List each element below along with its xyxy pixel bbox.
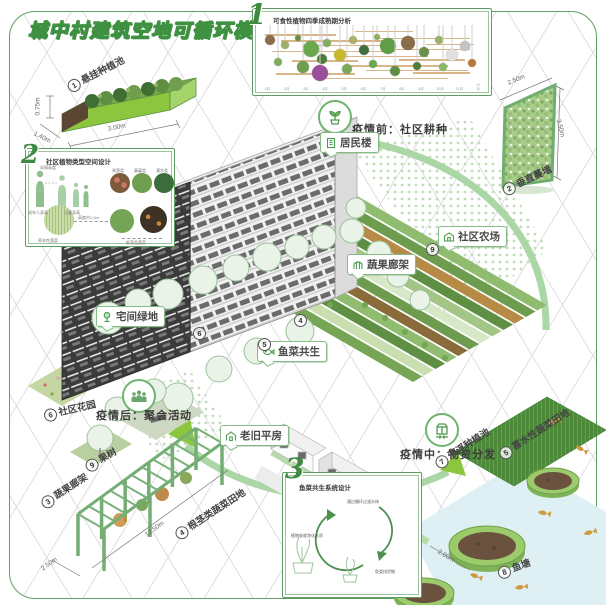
bubble-stem <box>278 25 279 62</box>
plant-bubble <box>303 41 319 57</box>
plant-photo-vine <box>132 173 152 193</box>
callout-text: 社区农场 <box>458 229 500 244</box>
note: 成年人身高 <box>28 210 48 216</box>
callout-text: 居民楼 <box>340 135 372 150</box>
plant-bubble <box>295 35 301 41</box>
plant-photo-leafy <box>110 209 134 233</box>
month-label: 2月 <box>284 87 289 92</box>
plan-number: 5 <box>258 338 271 351</box>
module-diagram-canvas: × × × <box>0 0 606 605</box>
panel-title: 可食性植物四季成熟期分析 <box>273 15 351 25</box>
month-label: 6月 <box>361 87 366 92</box>
phase-label-after: 疫情后：聚会活动 <box>96 407 192 423</box>
package-icon <box>425 413 459 447</box>
month-label: 12月 <box>476 83 480 92</box>
month-label: 3月 <box>303 87 308 92</box>
plant-bubble <box>274 58 282 66</box>
plant-bubble <box>265 35 275 45</box>
month-label: 9月 <box>418 87 423 92</box>
people-height-silhouettes <box>32 169 94 209</box>
note: 草本性蔬菜 <box>38 238 58 244</box>
month-label: 7月 <box>380 87 385 92</box>
hanging-planter <box>40 77 196 150</box>
bubble-stem <box>417 25 418 66</box>
panel-plant-types: 2 社区植物类型空间设计 成年人身高 儿童身高 采摘高度 果蔬类 藤蔓类 灌木类… <box>25 148 175 247</box>
callout-green-space: 宅间绿地 <box>96 306 165 327</box>
plant-photo-root <box>140 206 167 233</box>
plant-bubble <box>390 66 400 76</box>
plant-bubble <box>334 49 346 61</box>
bubble-stem <box>443 25 444 67</box>
cycle-label: 通过循环过滤水体 <box>347 499 379 505</box>
callout-text: 鱼菜共生 <box>278 344 320 359</box>
plant-photo-fruit <box>110 173 130 193</box>
tree-icon <box>101 311 113 323</box>
plant-photo-shrub <box>154 173 174 193</box>
month-label: 11月 <box>456 87 463 92</box>
season-bar <box>391 49 470 50</box>
plant-bubble <box>312 65 328 81</box>
cycle-label: 植物吸收净化水质 <box>291 533 323 539</box>
month-label: 10月 <box>436 87 443 92</box>
cycle-label: 鱼类排泄物 <box>375 569 395 575</box>
bubble-stem <box>395 25 396 71</box>
plant-bubble <box>439 63 447 71</box>
bubble-stem <box>373 25 374 64</box>
plant-bubble <box>359 45 369 55</box>
plant-bubble <box>413 62 421 70</box>
plant-bubble <box>468 59 476 67</box>
dashed-line <box>74 221 108 222</box>
callout-text: 老旧平房 <box>240 428 282 443</box>
plant-bubble <box>460 41 470 51</box>
edible-plants-chart: 1月2月3月4月5月6月7月8月9月10月11月12月 <box>263 25 483 84</box>
note: 根茎类蔬菜 <box>126 240 146 246</box>
plant-bubble <box>342 64 352 74</box>
plant-bubble <box>349 36 357 44</box>
plant-bubble <box>401 36 415 50</box>
month-label: 4月 <box>322 87 327 92</box>
house-icon <box>225 430 237 442</box>
dimension-label: 0.75m <box>35 97 42 115</box>
plan-number: 9 <box>426 243 439 256</box>
callout-community-farm: 社区农场 <box>438 226 507 247</box>
month-label: 8月 <box>399 87 404 92</box>
callout-text: 蔬果廊架 <box>367 257 409 272</box>
month-label: 5月 <box>341 87 346 92</box>
callout-text: 宅间绿地 <box>116 309 158 324</box>
cycle-diagram <box>283 491 419 595</box>
plant-bubble <box>374 34 380 40</box>
month-label: 1月 <box>265 87 270 92</box>
panel-seasonal-chart: 1 可食性植物四季成熟期分析 1月2月3月4月5月6月7月8月9月10月11月1… <box>252 8 492 96</box>
plan-number: 4 <box>294 314 307 327</box>
note: 灌木类 <box>156 168 168 174</box>
callout-residential-building: 居民楼 <box>320 132 379 153</box>
bubble-stem <box>472 25 473 63</box>
callout-old-houses: 老旧平房 <box>220 425 289 446</box>
note: 采摘高度 <box>40 165 56 171</box>
note: 果蔬类 <box>112 168 124 174</box>
callout-vegetable-trellis: 蔬果廊架 <box>347 254 416 275</box>
trellis-icon <box>352 259 364 271</box>
plant-bubble <box>369 60 377 68</box>
plan-number: 6 <box>193 327 206 340</box>
sprout-icon <box>318 100 352 134</box>
note: 藤蔓类 <box>134 168 146 174</box>
season-bar <box>413 72 470 73</box>
building-icon <box>325 137 337 149</box>
plant-bubble <box>446 49 458 61</box>
plant-bubble <box>323 39 331 47</box>
note: 高度约1.2m <box>78 215 99 221</box>
panel-aquaponics-cycle: 3 鱼菜共生系统设计 通过循环过滤水体 植物吸收净化水质 鱼类排泄物 <box>282 472 422 598</box>
plant-bubble <box>435 36 443 44</box>
farm-icon <box>443 231 455 243</box>
plant-bubble <box>281 41 289 49</box>
panel-number: 2 <box>21 142 39 168</box>
season-bar <box>325 78 448 79</box>
plant-bubble <box>297 61 309 73</box>
dashed-line <box>122 238 162 239</box>
bubble-stem <box>346 25 347 69</box>
plant-bubble <box>419 47 429 57</box>
panel-number: 1 <box>247 1 266 29</box>
panel-number: 3 <box>285 455 304 483</box>
season-bar <box>336 56 428 57</box>
